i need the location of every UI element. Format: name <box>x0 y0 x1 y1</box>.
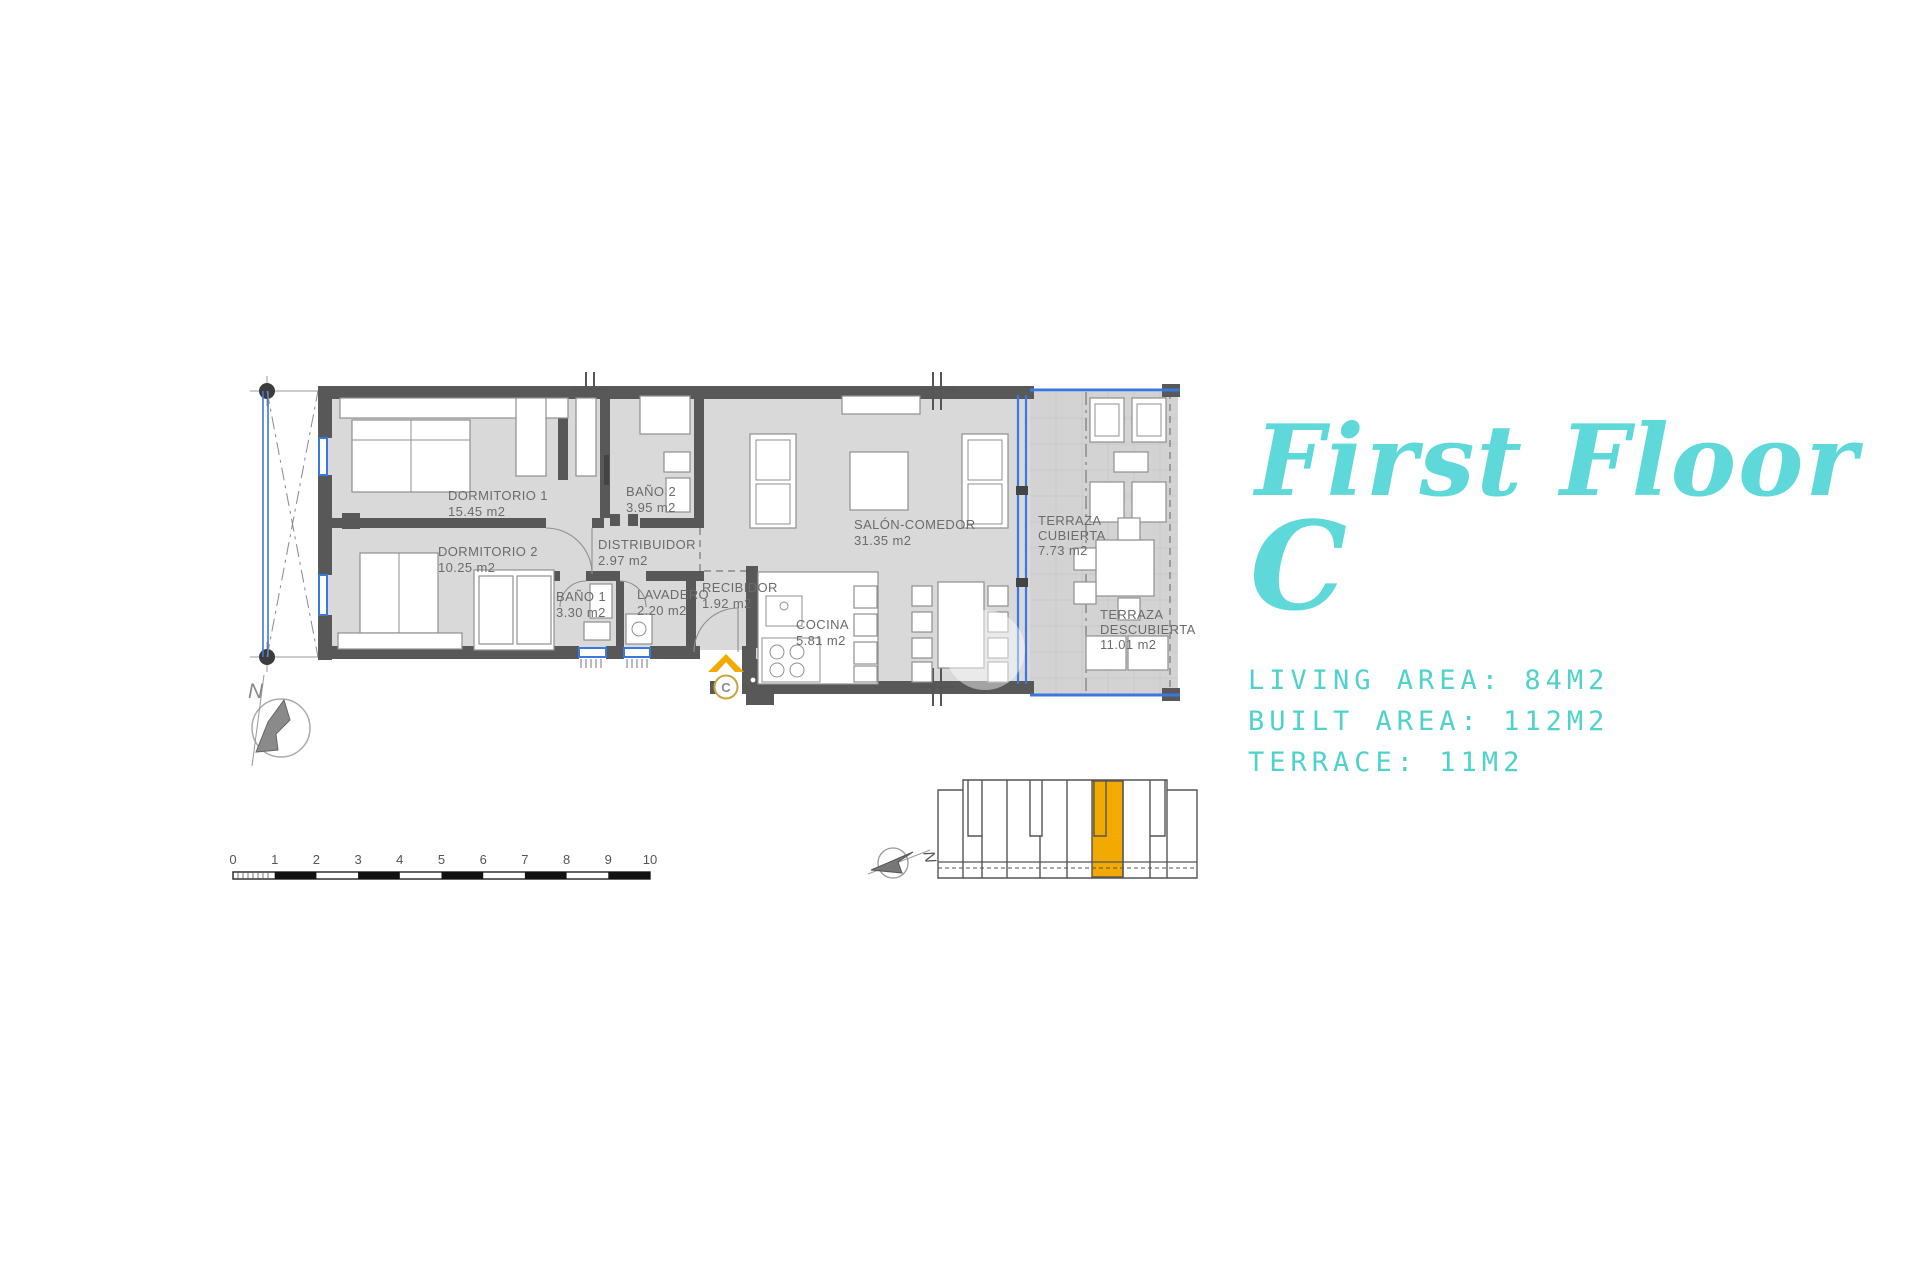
floor-plan-canvas: DORMITORIO 1 15.45 m2 DORMITORIO 2 10.25… <box>0 0 1920 1280</box>
svg-text:8: 8 <box>563 852 570 867</box>
room-label-bano-2: BAÑO 2 <box>626 484 676 499</box>
svg-text:6: 6 <box>480 852 487 867</box>
north-label: N <box>248 680 264 703</box>
svg-text:11.01 m2: 11.01 m2 <box>1100 637 1156 652</box>
terrace-stat: TERRACE: 11M2 <box>1248 742 1609 783</box>
room-label-salon-comedor: SALÓN-COMEDOR <box>854 517 976 532</box>
svg-text:1: 1 <box>271 852 278 867</box>
north-compass: N <box>248 675 310 766</box>
svg-text:2.20 m2: 2.20 m2 <box>637 603 687 618</box>
room-label-cocina: COCINA <box>796 617 849 632</box>
room-label-dormitorio-1: DORMITORIO 1 <box>448 488 548 503</box>
svg-text:9: 9 <box>605 852 612 867</box>
unit-locator: N <box>868 780 1197 878</box>
room-label-distribuidor: DISTRIBUIDOR <box>598 537 696 552</box>
svg-text:10: 10 <box>643 852 657 867</box>
room-label-lavadero: LAVADERO <box>637 587 709 602</box>
room-label-dormitorio-2: DORMITORIO 2 <box>438 544 538 559</box>
page: DORMITORIO 1 15.45 m2 DORMITORIO 2 10.25… <box>0 0 1920 1280</box>
svg-text:31.35 m2: 31.35 m2 <box>854 533 911 548</box>
watermark <box>945 610 1025 690</box>
svg-text:10.25 m2: 10.25 m2 <box>438 560 495 575</box>
svg-text:3.30 m2: 3.30 m2 <box>556 605 606 620</box>
area-stats: LIVING AREA: 84M2 BUILT AREA: 112M2 TERR… <box>1248 660 1609 783</box>
room-label-recibidor: RECIBIDOR <box>702 580 778 595</box>
svg-text:7.73 m2: 7.73 m2 <box>1038 543 1088 558</box>
built-area-stat: BUILT AREA: 112M2 <box>1248 701 1609 742</box>
svg-text:5.81 m2: 5.81 m2 <box>796 633 846 648</box>
outdoor-table-icon <box>1096 540 1154 596</box>
svg-text:3.95 m2: 3.95 m2 <box>626 500 676 515</box>
svg-text:DESCUBIERTA: DESCUBIERTA <box>1100 622 1196 637</box>
scale-bar: 0 1 2 3 4 5 6 7 8 9 10 <box>229 852 657 879</box>
entrance-unit-letter: C <box>721 680 731 695</box>
page-title-unit-letter: C <box>1250 494 1347 638</box>
room-label-terraza-cubierta: TERRAZA <box>1038 513 1101 528</box>
svg-text:5: 5 <box>438 852 445 867</box>
sofa-icon <box>962 434 1008 528</box>
svg-text:1.92 m2: 1.92 m2 <box>702 596 752 611</box>
svg-text:CUBIERTA: CUBIERTA <box>1038 528 1106 543</box>
sink-icon <box>584 622 610 640</box>
locator-north-label: N <box>919 849 938 865</box>
structural-grid-left <box>250 376 320 672</box>
washer-icon <box>626 614 652 644</box>
shower-icon <box>640 396 690 434</box>
svg-text:15.45 m2: 15.45 m2 <box>448 504 505 519</box>
locator-compass: N <box>868 848 939 878</box>
wardrobe-icon <box>479 576 513 644</box>
svg-text:4: 4 <box>396 852 403 867</box>
laundry-fixtures <box>626 614 652 644</box>
living-area-stat: LIVING AREA: 84M2 <box>1248 660 1609 701</box>
coffee-table-icon <box>850 452 908 510</box>
sofa-icon <box>750 434 796 528</box>
svg-text:7: 7 <box>521 852 528 867</box>
svg-text:2: 2 <box>313 852 320 867</box>
room-label-terraza-descubierta: TERRAZA <box>1100 607 1163 622</box>
svg-text:2.97 m2: 2.97 m2 <box>598 553 648 568</box>
svg-text:0: 0 <box>229 852 236 867</box>
room-label-bano-1: BAÑO 1 <box>556 589 606 604</box>
svg-text:3: 3 <box>354 852 361 867</box>
sink-icon <box>664 452 690 472</box>
